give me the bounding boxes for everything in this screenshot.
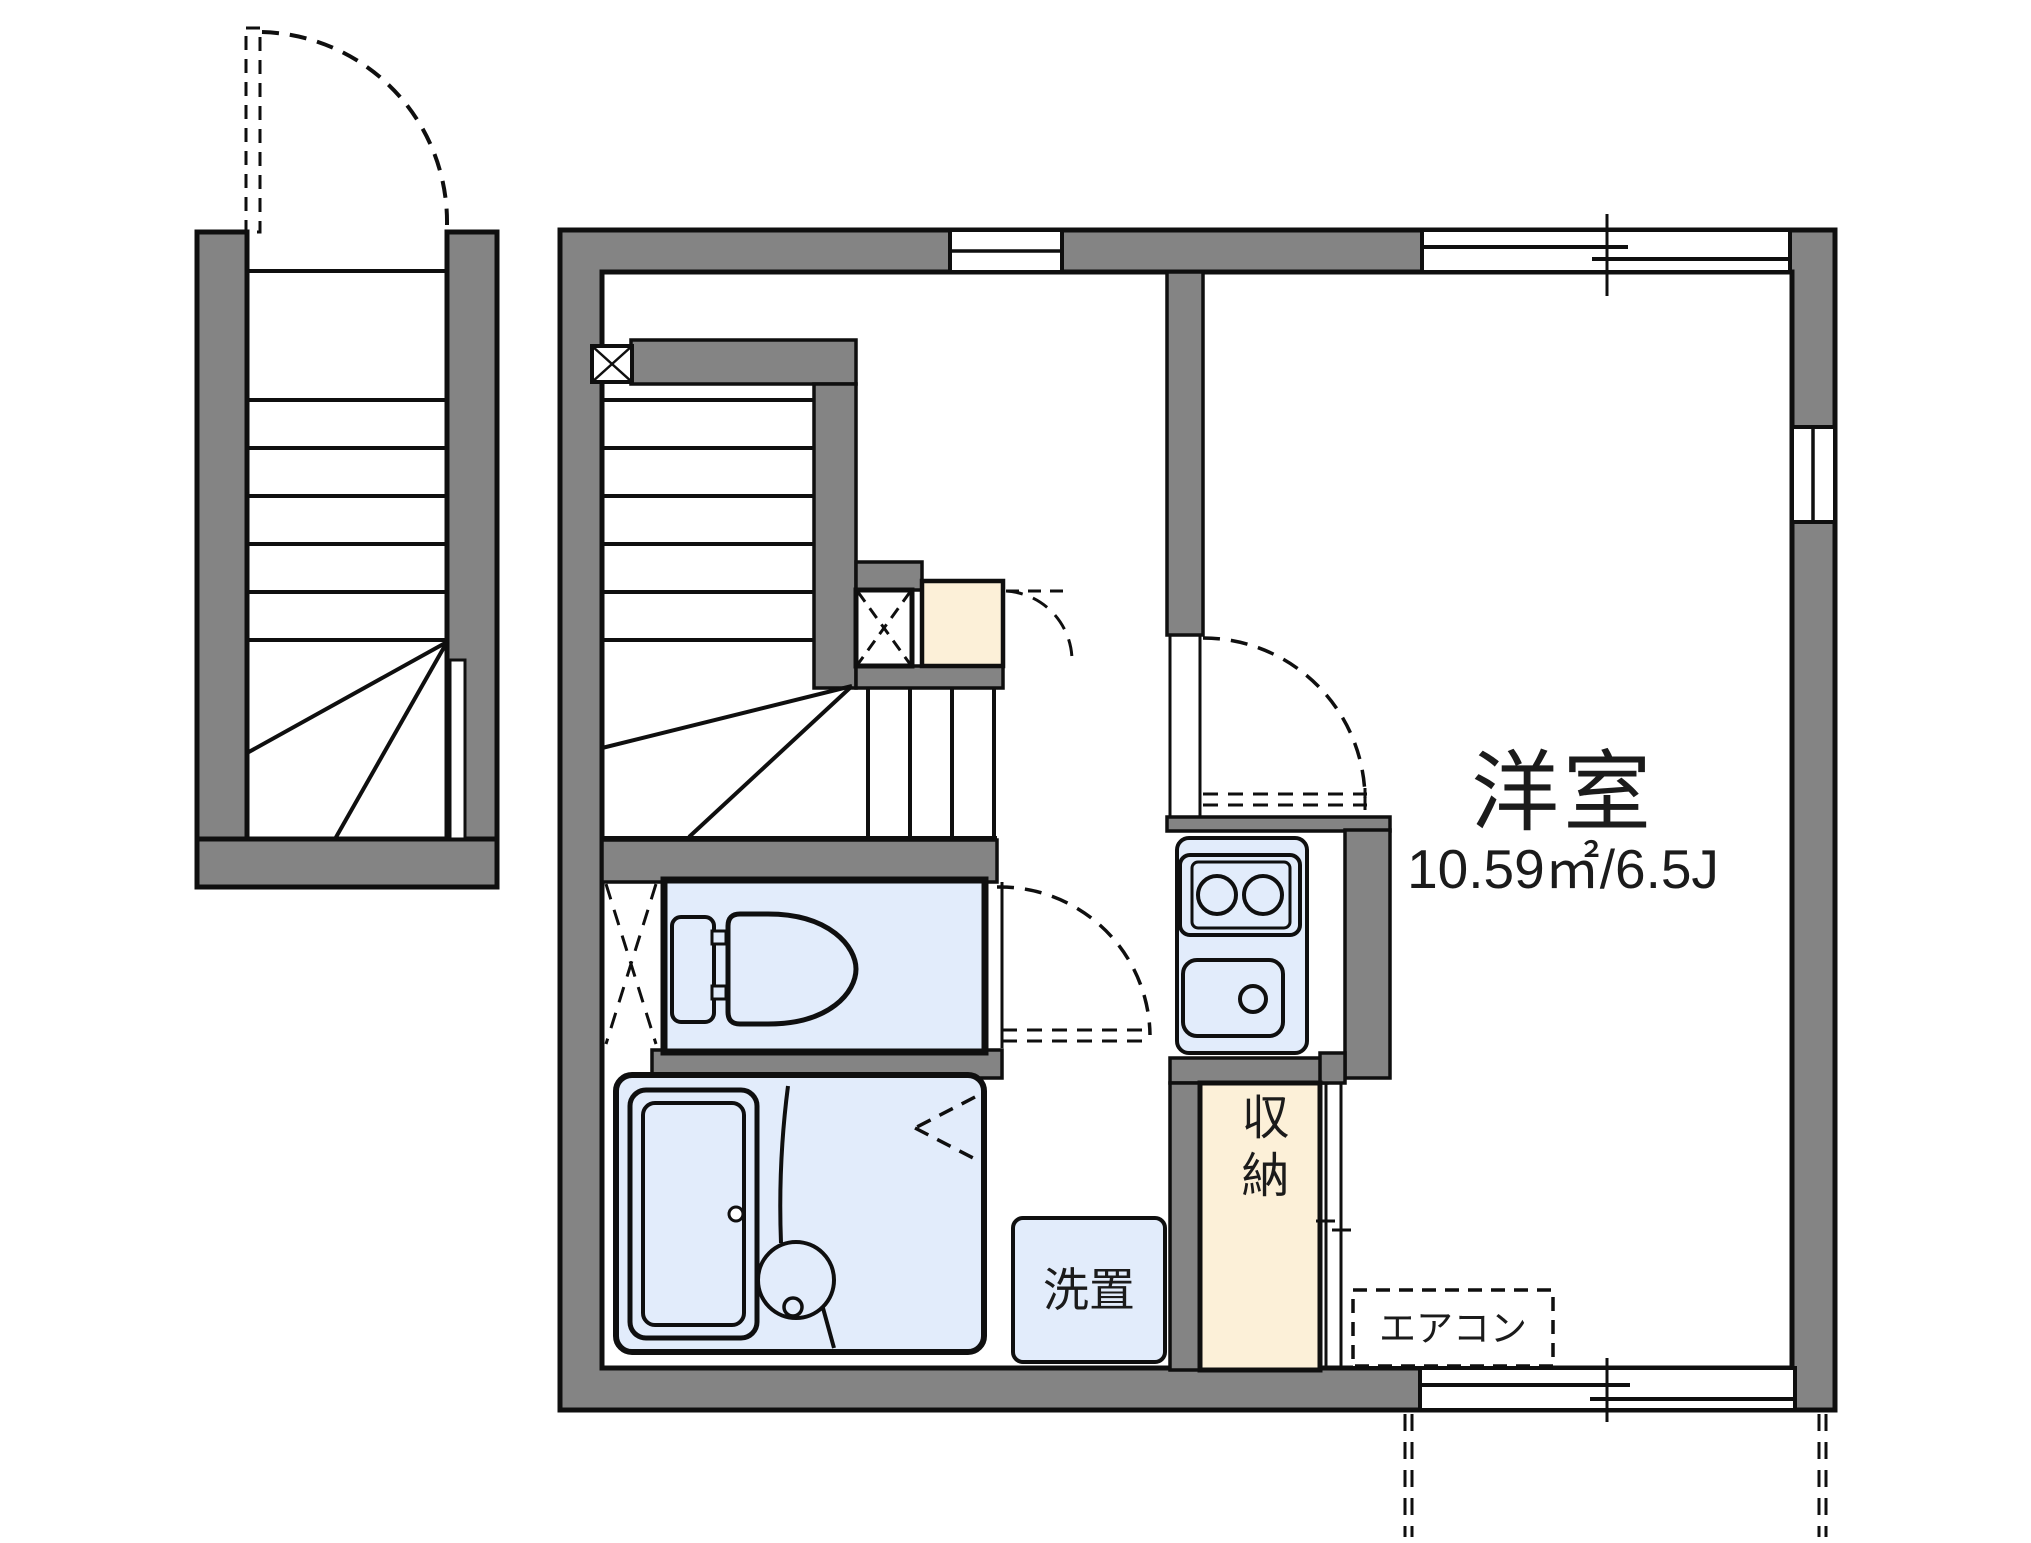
roof-projection-dashes: [1405, 1414, 1826, 1537]
water-heater-box: [922, 581, 1003, 666]
bathtub-icon: [630, 1090, 757, 1338]
washer-label: 洗置: [1043, 1264, 1135, 1316]
vent-box: [592, 346, 632, 382]
room-entrance-door: [1170, 635, 1367, 817]
kitchen-sink-icon: [1183, 960, 1283, 1036]
storage-left-wall: [1170, 1083, 1200, 1370]
entry-wall-band: [631, 340, 856, 384]
washer-space: 洗置: [1013, 1218, 1165, 1362]
storage-top-wall: [1170, 1058, 1327, 1083]
kitchen-right-wall: [1345, 830, 1390, 1078]
kitchen-stove-icon: [1180, 855, 1300, 935]
ext-stair-bottom-wall: [197, 839, 497, 887]
kitchen: [1167, 817, 1390, 1078]
stair-side-wall: [814, 384, 856, 688]
window-top-small: [950, 230, 1062, 272]
aircon-marker: エアコン: [1353, 1290, 1553, 1366]
window-top-sliding: [1422, 214, 1790, 296]
entry-door-leaf: [246, 28, 260, 232]
pipe-shaft-box: [856, 590, 912, 666]
floorplan-canvas: 洗置 収納: [0, 0, 2031, 1543]
window-right: [1792, 427, 1835, 522]
shaft-bottom-wall: [856, 666, 1003, 688]
ext-stair-wall-slit: [450, 660, 465, 839]
room-size-label: 10.59㎡/6.5J: [1407, 838, 1719, 900]
wall-end-cap: [1320, 1053, 1345, 1083]
room-name-label: 洋室: [1471, 743, 1655, 842]
shaft-top-wall: [856, 562, 922, 590]
middle-wall: [1167, 272, 1203, 635]
toilet-icon: [672, 914, 856, 1024]
bathroom: [616, 1075, 984, 1352]
storage-label: 収納: [1234, 1092, 1289, 1208]
toilet-top-wall: [602, 840, 997, 882]
floorplan-page: 洗置 収納: [0, 0, 2031, 1543]
storage-closet: 収納: [1170, 1053, 1351, 1370]
shaft-void: [606, 884, 656, 1044]
aircon-label: エアコン: [1379, 1308, 1527, 1349]
water-heater-door: [1006, 591, 1072, 662]
toilet-door: [987, 882, 1152, 1048]
interior-walls-top: [592, 340, 1072, 688]
toilet-room: [664, 880, 985, 1052]
ext-stair-left-wall: [197, 232, 247, 887]
ext-stair-treads: [247, 400, 447, 839]
exterior-staircase: [197, 28, 497, 887]
entry-door-arc: [262, 32, 447, 225]
room-labels: 洋室 10.59㎡/6.5J: [1407, 743, 1719, 900]
